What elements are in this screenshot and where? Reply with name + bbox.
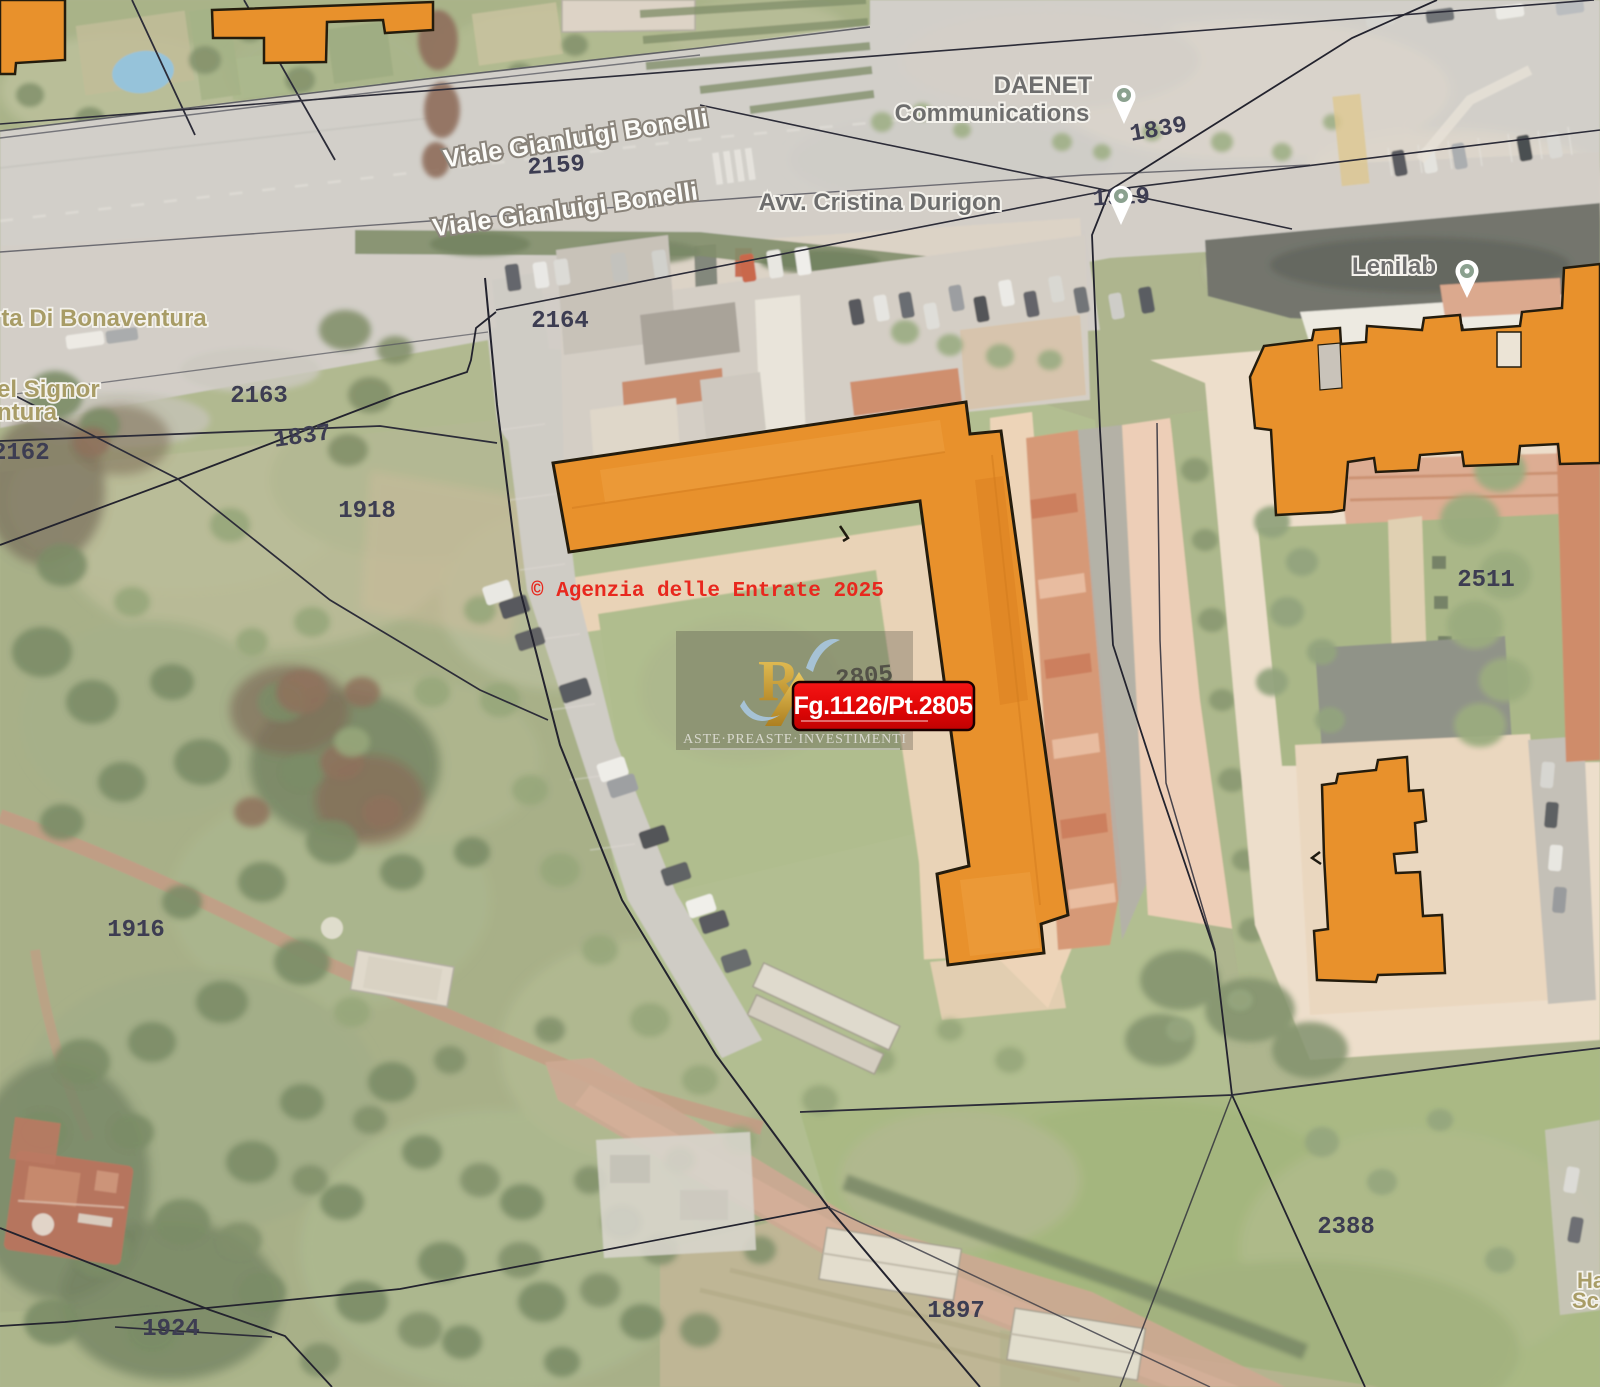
svg-text:1918: 1918	[338, 498, 396, 525]
svg-text:ta Di Bonaventura: ta Di Bonaventura	[1, 305, 207, 332]
svg-text:ntura: ntura	[0, 399, 58, 426]
svg-text:1916: 1916	[107, 917, 165, 944]
svg-text:2511: 2511	[1457, 567, 1515, 594]
svg-text:2164: 2164	[531, 308, 589, 335]
svg-text:1924: 1924	[142, 1316, 200, 1343]
svg-text:2163: 2163	[230, 383, 288, 410]
svg-text:Avv. Cristina Durigon: Avv. Cristina Durigon	[759, 189, 1002, 216]
svg-text:2162: 2162	[0, 440, 50, 467]
svg-text:DAENET: DAENET	[994, 72, 1093, 99]
svg-text:Fg.1126/Pt.2805: Fg.1126/Pt.2805	[794, 692, 973, 720]
svg-text:2388: 2388	[1317, 1214, 1375, 1241]
svg-text:ASTE·PREASTE·INVESTIMENTI: ASTE·PREASTE·INVESTIMENTI	[683, 732, 907, 747]
svg-text:2159: 2159	[527, 151, 586, 182]
svg-text:1897: 1897	[927, 1298, 985, 1325]
svg-text:© Agenzia delle Entrate 2025: © Agenzia delle Entrate 2025	[531, 580, 884, 603]
svg-text:Sc: Sc	[1572, 1288, 1599, 1313]
svg-text:Communications: Communications	[895, 100, 1090, 127]
svg-text:Lenilab: Lenilab	[1352, 253, 1436, 280]
